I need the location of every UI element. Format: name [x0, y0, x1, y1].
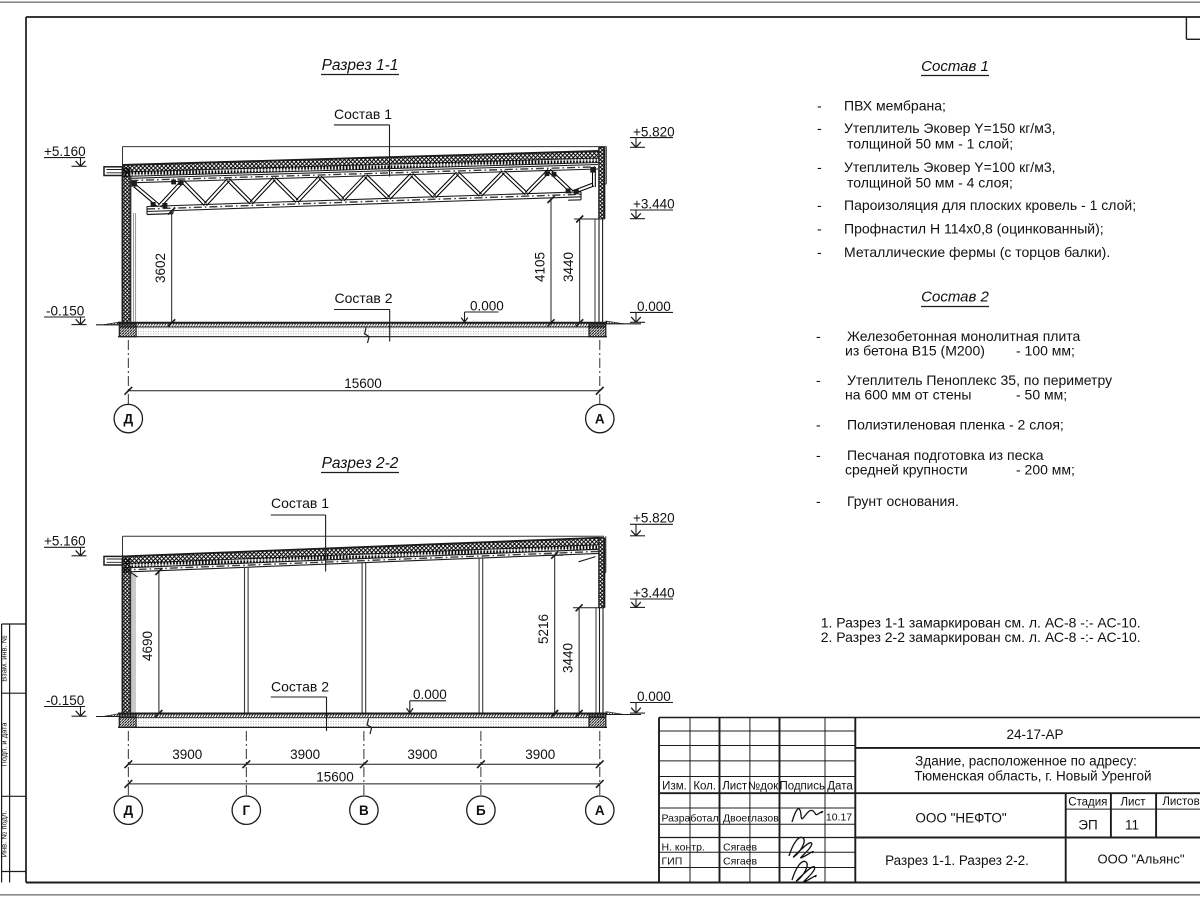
svg-text:0.000: 0.000	[637, 689, 671, 704]
svg-text:+5.160: +5.160	[44, 534, 86, 549]
svg-text:Б: Б	[476, 803, 486, 818]
svg-text:Профнастил Н 114х0,8 (оцинкова: Профнастил Н 114х0,8 (оцинкованный);	[844, 221, 1104, 237]
svg-text:+5.160: +5.160	[44, 144, 86, 159]
svg-text:-: -	[817, 197, 822, 213]
svg-text:ЭП: ЭП	[1078, 818, 1097, 833]
svg-text:толщиной 50 мм - 4 слоя;: толщиной 50 мм - 4 слоя;	[847, 175, 1013, 191]
svg-text:из бетона В15 (М200): из бетона В15 (М200)	[845, 343, 985, 359]
svg-text:Разрез 1-1. Разрез 2-2.: Разрез 1-1. Разрез 2-2.	[885, 853, 1029, 868]
svg-text:+5.820: +5.820	[633, 511, 675, 526]
svg-text:ООО "НЕФТО": ООО "НЕФТО"	[915, 811, 1006, 826]
svg-text:Утеплитель Эковер Y=150 кг/м3,: Утеплитель Эковер Y=150 кг/м3,	[844, 120, 1056, 136]
svg-text:5216: 5216	[536, 614, 551, 644]
svg-text:-: -	[816, 417, 821, 433]
svg-text:Пароизоляция для плоских крове: Пароизоляция для плоских кровель - 1 сло…	[844, 197, 1136, 213]
svg-text:10.17: 10.17	[826, 811, 852, 823]
svg-text:Г: Г	[242, 803, 250, 818]
svg-text:№док.: №док.	[748, 781, 782, 793]
svg-text:3602: 3602	[153, 253, 168, 283]
svg-text:3900: 3900	[290, 747, 320, 762]
svg-text:Состав 2: Состав 2	[334, 290, 392, 306]
svg-text:Изм.: Изм.	[662, 781, 687, 793]
svg-text:Тюменская область, г. Новый Ур: Тюменская область, г. Новый Уренгой	[914, 769, 1151, 784]
svg-text:Сягаев: Сягаев	[723, 856, 758, 868]
svg-text:- 50 мм;: - 50 мм;	[1016, 387, 1067, 403]
svg-text:Сягаев: Сягаев	[723, 841, 758, 853]
svg-text:ООО "Альянс": ООО "Альянс"	[1098, 852, 1185, 867]
svg-text:Д: Д	[123, 412, 133, 427]
svg-text:3440: 3440	[561, 252, 576, 282]
svg-text:Полиэтиленовая пленка - 2 слоя: Полиэтиленовая пленка - 2 слоя;	[847, 417, 1064, 433]
svg-text:0.000: 0.000	[470, 299, 504, 314]
svg-text:-: -	[817, 221, 822, 237]
svg-text:3900: 3900	[407, 747, 437, 762]
svg-text:3440: 3440	[560, 643, 575, 673]
svg-text:В: В	[359, 803, 369, 818]
svg-text:0.000: 0.000	[413, 687, 447, 702]
svg-text:15600: 15600	[344, 376, 382, 391]
svg-text:Состав 2: Состав 2	[271, 679, 329, 695]
svg-text:Разрез 2-2: Разрез 2-2	[322, 455, 399, 472]
svg-text:3900: 3900	[525, 747, 555, 762]
svg-text:Кол.: Кол.	[693, 781, 716, 793]
svg-text:- 200 мм;: - 200 мм;	[1016, 462, 1075, 478]
svg-text:Утеплитель Пеноплекс 35, по пе: Утеплитель Пеноплекс 35, по периметру	[847, 372, 1112, 388]
svg-text:2. Разрез 2-2 замаркирован см.: 2. Разрез 2-2 замаркирован см. л. АС-8 -…	[821, 629, 1141, 645]
svg-text:Состав 1: Состав 1	[334, 106, 392, 122]
svg-text:4690: 4690	[140, 631, 155, 661]
svg-text:3900: 3900	[172, 747, 202, 762]
svg-text:Н. контр.: Н. контр.	[662, 841, 705, 853]
svg-text:Утеплитель Эковер Y=100 кг/м3,: Утеплитель Эковер Y=100 кг/м3,	[844, 159, 1056, 175]
svg-text:Подп. и дата: Подп. и дата	[0, 722, 8, 767]
svg-text:0.000: 0.000	[637, 299, 671, 314]
svg-text:на 600 мм от стены: на 600 мм от стены	[845, 387, 971, 403]
svg-text:Двоеглазов: Двоеглазов	[723, 812, 779, 824]
svg-text:Здание, расположенное по адрес: Здание, расположенное по адресу:	[915, 754, 1137, 769]
svg-text:Д: Д	[123, 803, 133, 818]
svg-text:Песчаная подготовка из песка: Песчаная подготовка из песка	[847, 447, 1044, 463]
svg-text:А: А	[595, 412, 605, 427]
svg-text:Состав 1: Состав 1	[921, 58, 989, 75]
svg-text:-: -	[817, 98, 822, 114]
svg-text:Состав 2: Состав 2	[921, 289, 989, 306]
svg-text:11: 11	[1125, 818, 1139, 833]
svg-text:4105: 4105	[532, 252, 547, 282]
svg-text:Листов: Листов	[1162, 796, 1199, 808]
svg-text:Металлические фермы (с торцов: Металлические фермы (с торцов балки).	[844, 244, 1110, 260]
svg-text:-: -	[817, 159, 822, 175]
svg-text:-: -	[816, 372, 821, 388]
svg-text:- 100 мм;: - 100 мм;	[1016, 343, 1075, 359]
svg-text:-: -	[817, 244, 822, 260]
svg-text:Грунт основания.: Грунт основания.	[847, 493, 959, 509]
svg-text:А: А	[595, 803, 605, 818]
svg-text:толщиной 50 мм - 1 слой;: толщиной 50 мм - 1 слой;	[847, 136, 1013, 152]
svg-text:-: -	[816, 493, 821, 509]
svg-text:Лист: Лист	[722, 781, 748, 793]
svg-text:Инв. № подл.: Инв. № подл.	[0, 811, 8, 858]
svg-text:средней крупности: средней крупности	[845, 462, 968, 478]
svg-text:Разработал: Разработал	[662, 812, 719, 824]
svg-text:Железобетонная монолитная пли: Железобетонная монолитная плита	[847, 328, 1081, 344]
svg-text:-: -	[816, 447, 821, 463]
svg-text:Лист: Лист	[1121, 796, 1147, 808]
svg-text:24-17-АР: 24-17-АР	[1006, 727, 1063, 742]
svg-text:Дата: Дата	[827, 781, 853, 793]
svg-text:ГИП: ГИП	[662, 856, 683, 868]
svg-text:-0.150: -0.150	[46, 693, 84, 708]
svg-text:Разрез 1-1: Разрез 1-1	[322, 57, 399, 74]
svg-text:-0.150: -0.150	[46, 303, 84, 318]
svg-text:-: -	[817, 120, 822, 136]
svg-text:-: -	[816, 328, 821, 344]
svg-text:ПВХ мембрана;: ПВХ мембрана;	[844, 98, 946, 114]
svg-text:Подпись: Подпись	[779, 781, 825, 793]
svg-text:Взам. инв. №: Взам. инв. №	[0, 635, 8, 681]
svg-text:Стадия: Стадия	[1068, 796, 1107, 808]
svg-text:Состав 1: Состав 1	[271, 495, 329, 511]
svg-text:+3.440: +3.440	[633, 586, 675, 601]
svg-text:15600: 15600	[316, 769, 354, 784]
